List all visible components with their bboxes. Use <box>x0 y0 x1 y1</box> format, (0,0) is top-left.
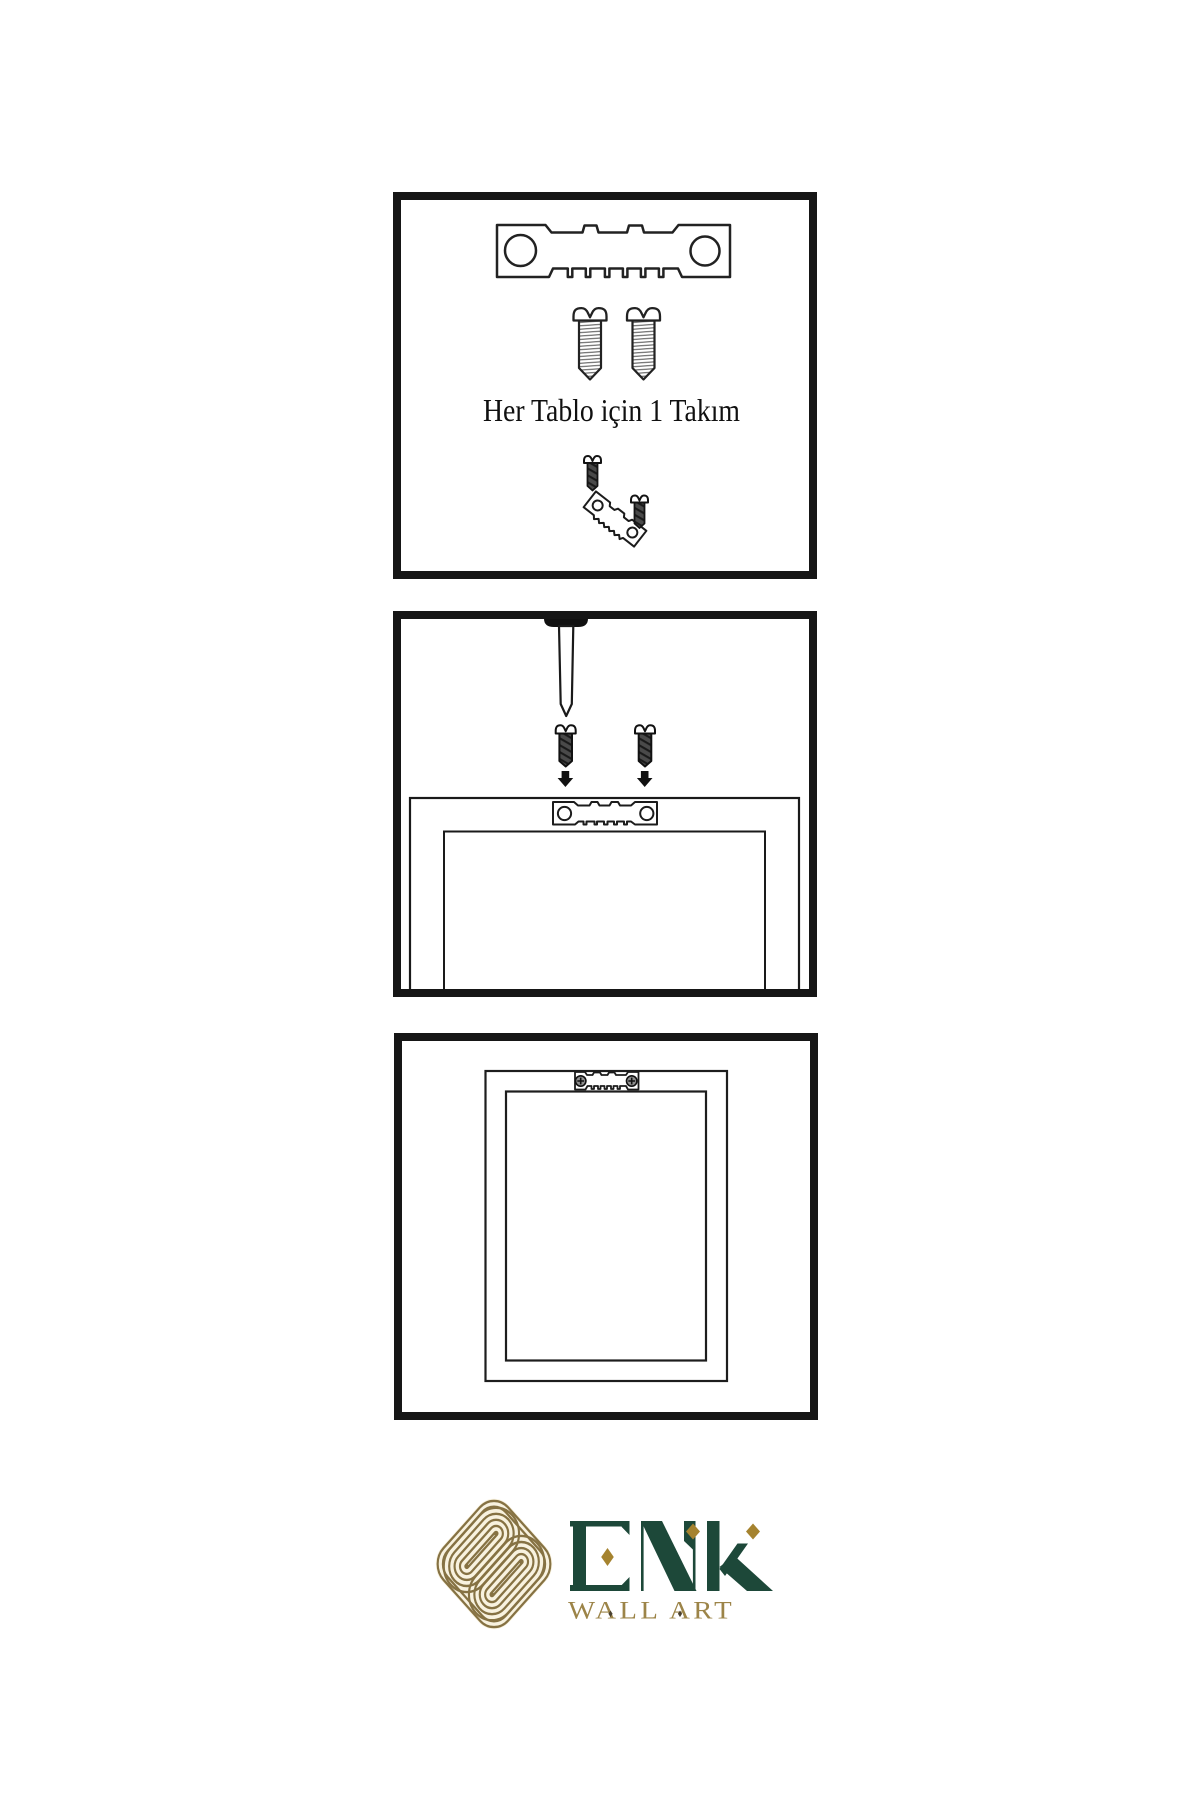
svg-text:WALL ART: WALL ART <box>568 1596 735 1625</box>
svg-text:Her Tablo için 1 Takım: Her Tablo için 1 Takım <box>483 393 740 428</box>
